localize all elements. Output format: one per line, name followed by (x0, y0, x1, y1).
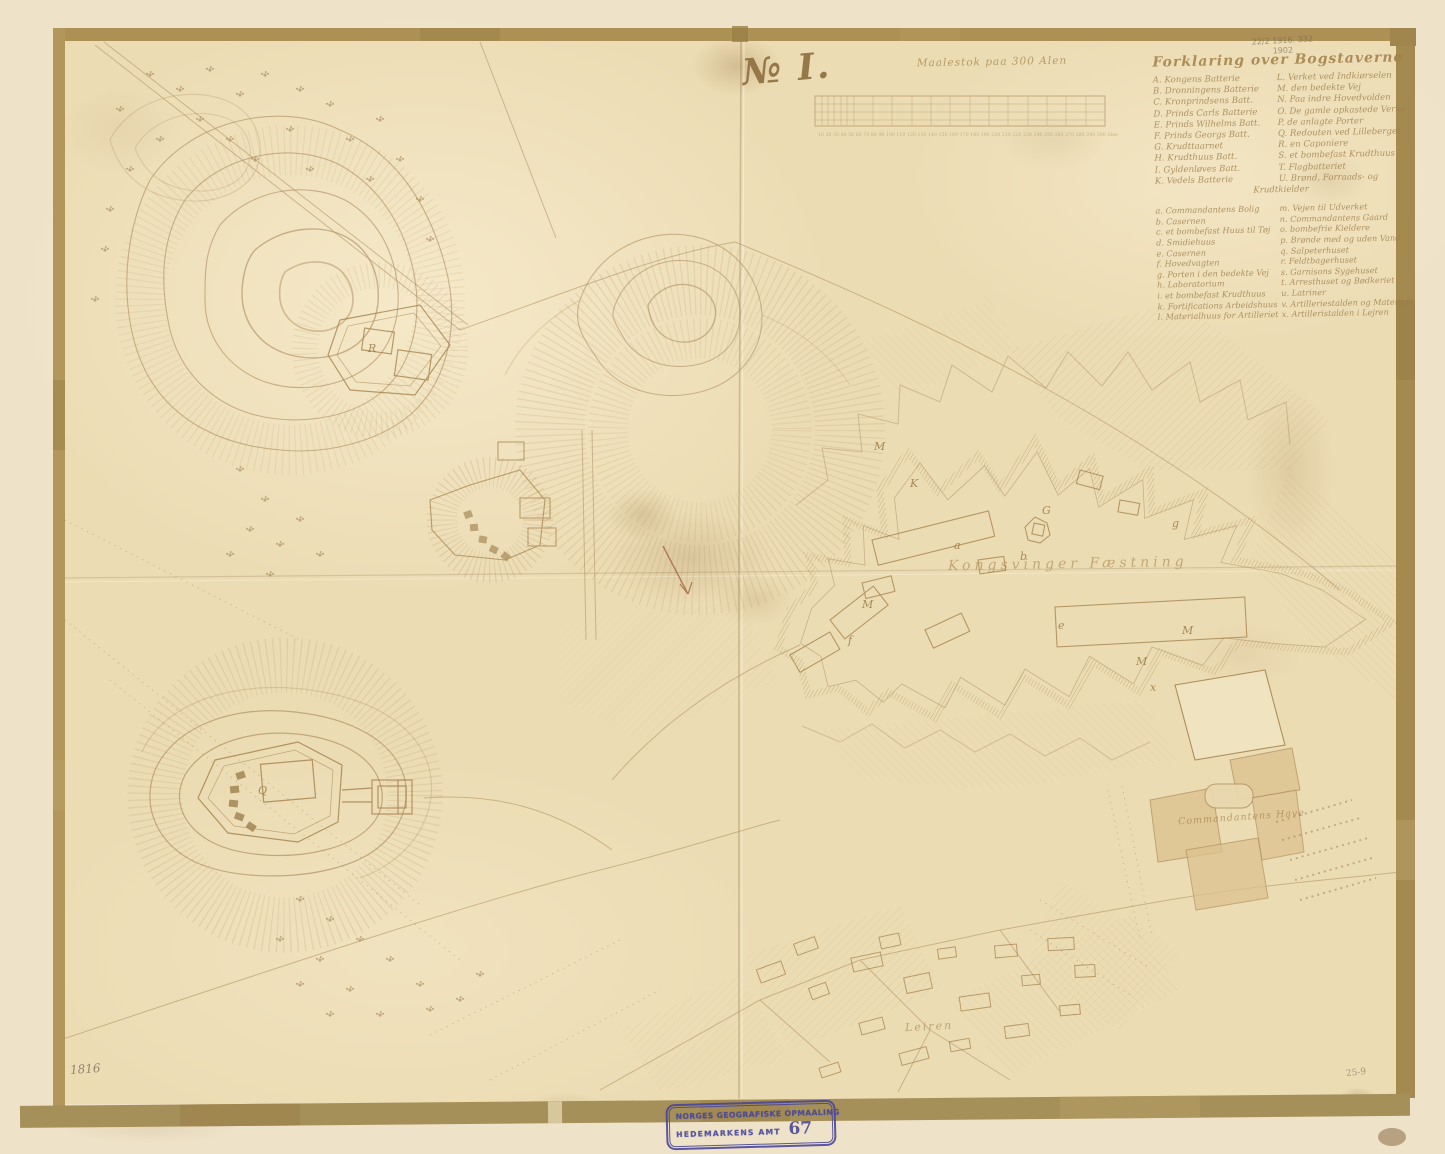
fort-letter: G (1042, 504, 1051, 517)
corner-annotation: 25-9 (1346, 1067, 1367, 1079)
date-annotation: 1816 (70, 1061, 101, 1077)
town-name-script: Leiren (905, 1019, 954, 1035)
pencil-notes: 22/2 1916. 332 1902 (1252, 34, 1314, 57)
legend: Forklaring over Bogstaverne A. Kongens B… (1152, 49, 1410, 322)
map-sheet: 10 20 30 40 50 60 70 80 90 100 110 120 1… (0, 0, 1445, 1154)
label-redoubt-r: R (367, 342, 376, 355)
fort-letter: e (1058, 619, 1065, 632)
stamp-region: HEDEMARKENS AMT (676, 1127, 781, 1139)
fort-letter: x (1150, 681, 1157, 694)
scale-ticks: 10 20 30 40 50 60 70 80 90 100 110 120 1… (818, 132, 1118, 138)
fort-letter: M (1135, 655, 1148, 668)
legend-lower-section: a. Commandantens Boligm. Vejen til Udver… (1155, 201, 1409, 323)
fort-letter: M (873, 440, 886, 453)
stamp-number: 67 (788, 1118, 812, 1139)
fort-letter: K (909, 477, 919, 490)
fort-letter: M (861, 598, 874, 611)
label-redoubt-q: Q (258, 784, 267, 797)
stamp-inner-border: NORGES GEOGRAFISKE OPMAALING HEDEMARKENS… (668, 1103, 833, 1148)
map-number-title: № I. (740, 44, 832, 94)
fort-letter: a (954, 539, 961, 552)
fort-letter: M (1181, 624, 1194, 637)
fort-letter: g (1172, 517, 1179, 530)
archive-stamp: NORGES GEOGRAFISKE OPMAALING HEDEMARKENS… (665, 1100, 836, 1151)
